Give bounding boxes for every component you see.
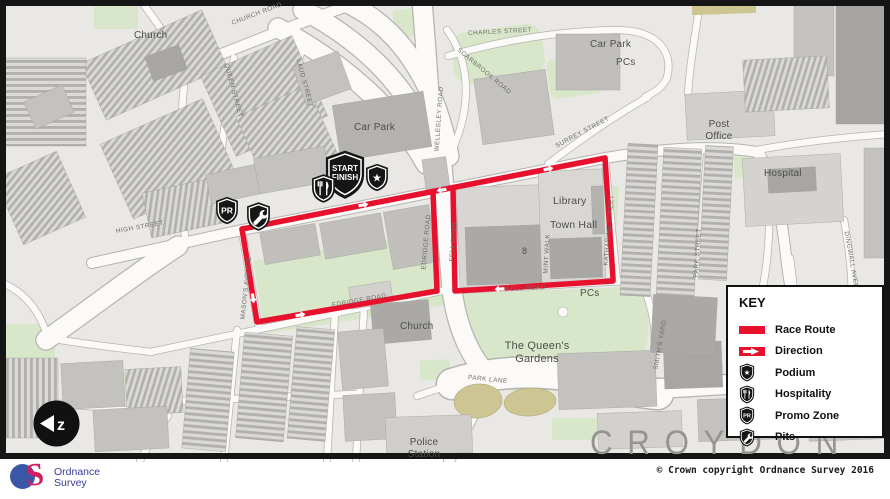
start-label: START bbox=[332, 164, 358, 173]
label-pcs-ne: PCs bbox=[616, 57, 636, 69]
key-row-direction: Direction bbox=[739, 341, 882, 363]
label-library: Library bbox=[553, 196, 587, 208]
key-row-hospitality: Hospitality bbox=[739, 384, 882, 406]
label-hospital: Hospital bbox=[764, 168, 802, 180]
hospitality-shield-icon bbox=[739, 385, 755, 404]
key-label: Promo Zone bbox=[775, 410, 839, 422]
race-route-swatch bbox=[739, 326, 765, 334]
pits-shield-icon bbox=[739, 428, 755, 447]
key-label: Race Route bbox=[775, 324, 836, 336]
podium-marker bbox=[365, 163, 389, 192]
key-label: Podium bbox=[775, 367, 815, 379]
key-label: Hospitality bbox=[775, 388, 831, 400]
key-title: KEY bbox=[739, 295, 882, 310]
hospitality-marker bbox=[311, 173, 336, 204]
label-church-s: Church bbox=[400, 321, 433, 333]
label-pcs-fell: PCs bbox=[580, 288, 600, 300]
os-logo-s-icon: S bbox=[24, 455, 46, 494]
label-car-park: Car Park bbox=[354, 122, 395, 134]
label-church-nw: Church bbox=[134, 30, 167, 42]
label-queens-gardens: The Queen's Gardens bbox=[494, 340, 580, 366]
label-police-station: Police Station bbox=[398, 437, 450, 460]
direction-arrow-icon bbox=[739, 347, 765, 356]
key-row-pits: Pits bbox=[739, 427, 882, 449]
promo-zone-marker bbox=[215, 196, 239, 225]
promo-zone-shield-icon bbox=[739, 406, 755, 425]
key-label: Pits bbox=[775, 431, 795, 443]
label-building-8: 8 bbox=[522, 246, 527, 258]
copyright-text: © Crown copyright Ordnance Survey 2016 bbox=[657, 465, 874, 476]
os-logo-line2: Survey bbox=[54, 478, 100, 489]
label-car-park-ne: Car Park bbox=[590, 39, 631, 51]
race-route-map-page: ★ PR START FINISH Church Car Park Car Pa… bbox=[0, 0, 890, 499]
north-arrow: z bbox=[33, 400, 80, 447]
podium-shield-icon bbox=[739, 363, 755, 382]
key-row-race-route: Race Route bbox=[739, 319, 882, 341]
map-key: KEY Race Route Direction Podium Hospital… bbox=[726, 285, 884, 438]
key-row-promo-zone: Promo Zone bbox=[739, 405, 882, 427]
key-label: Direction bbox=[775, 345, 823, 357]
label-post-office: Post Office bbox=[694, 119, 744, 142]
label-town-hall: Town Hall bbox=[550, 220, 597, 232]
north-glyph: z bbox=[57, 417, 65, 434]
pits-marker bbox=[246, 201, 271, 232]
key-row-podium: Podium bbox=[739, 362, 882, 384]
ordnance-survey-logo: S Ordnance Survey bbox=[10, 462, 140, 496]
